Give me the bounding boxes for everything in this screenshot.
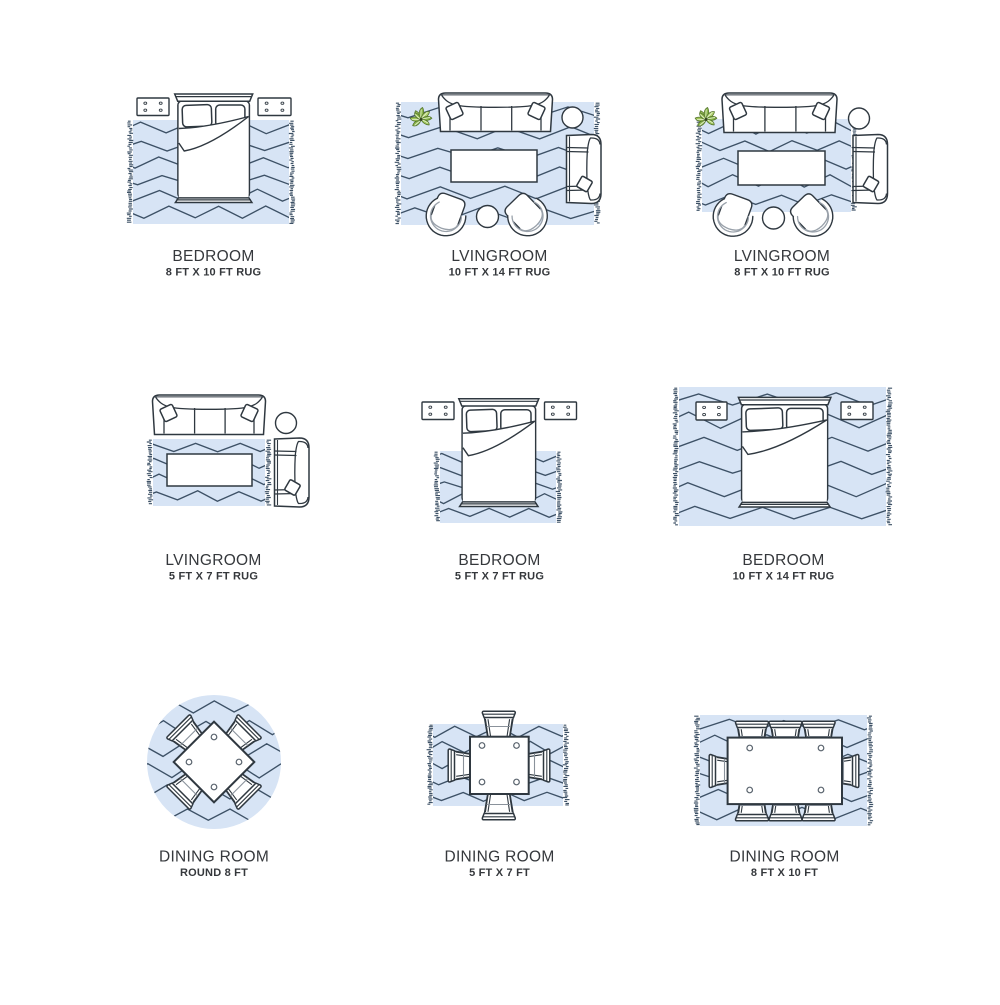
svg-text:5 FT X 7 FT RUG: 5 FT X 7 FT RUG: [169, 571, 258, 583]
svg-text:LVINGROOM: LVINGROOM: [734, 248, 830, 265]
svg-text:DINING ROOM: DINING ROOM: [444, 849, 554, 866]
svg-text:BEDROOM: BEDROOM: [172, 248, 254, 265]
svg-text:BEDROOM: BEDROOM: [458, 552, 540, 569]
svg-text:LVINGROOM: LVINGROOM: [165, 552, 261, 569]
svg-text:BEDROOM: BEDROOM: [742, 552, 824, 569]
svg-text:8 FT X 10 FT: 8 FT X 10 FT: [751, 867, 818, 879]
svg-text:5 FT X 7 FT RUG: 5 FT X 7 FT RUG: [455, 571, 544, 583]
svg-text:DINING ROOM: DINING ROOM: [729, 849, 839, 866]
svg-text:10 FT X 14 FT RUG: 10 FT X 14 FT RUG: [449, 267, 551, 279]
svg-text:LVINGROOM: LVINGROOM: [451, 248, 547, 265]
svg-text:10 FT X 14 FT RUG: 10 FT X 14 FT RUG: [733, 571, 835, 583]
svg-text:8 FT X 10 FT RUG: 8 FT X 10 FT RUG: [734, 267, 830, 279]
svg-text:DINING ROOM: DINING ROOM: [159, 849, 269, 866]
svg-text:8 FT X 10 FT RUG: 8 FT X 10 FT RUG: [166, 267, 262, 279]
svg-text:5 FT X 7 FT: 5 FT X 7 FT: [469, 867, 530, 879]
svg-text:ROUND 8 FT: ROUND 8 FT: [180, 867, 248, 879]
